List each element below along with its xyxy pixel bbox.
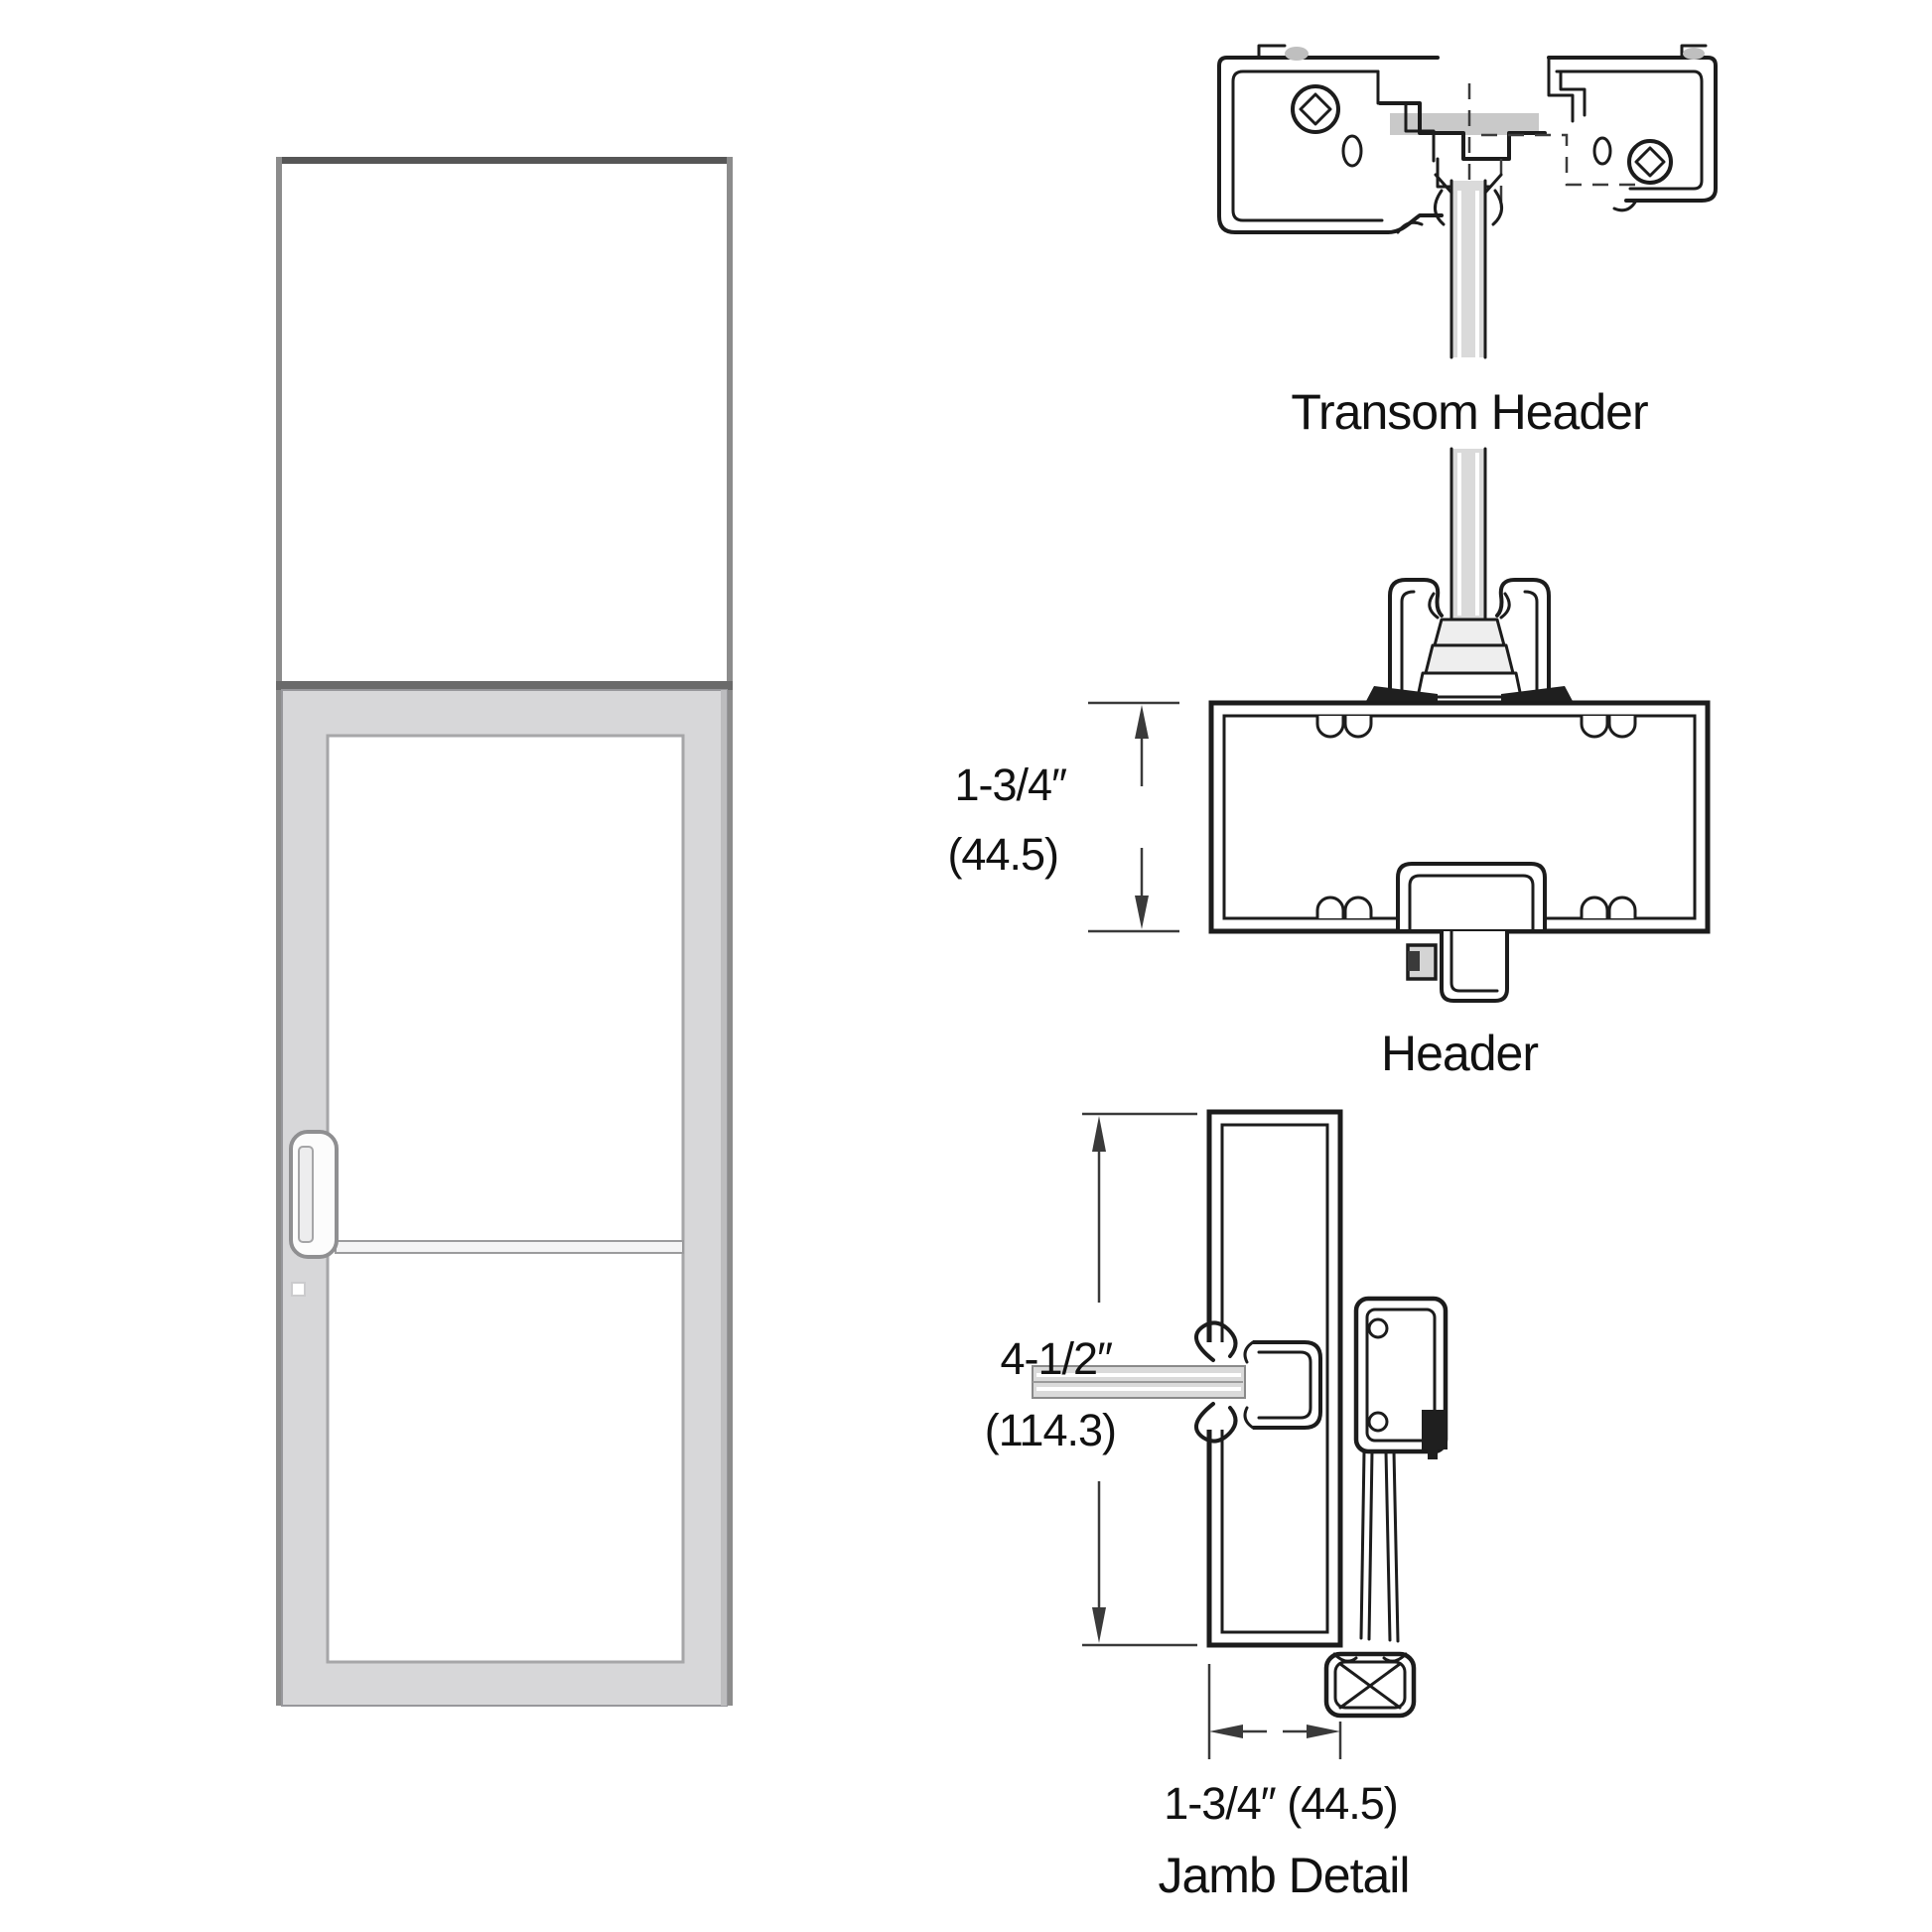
header-label: Header xyxy=(1381,1026,1538,1081)
screw-spline xyxy=(1609,897,1635,918)
dimension-ticks xyxy=(1088,703,1179,931)
door-elevation xyxy=(276,157,733,1706)
stile-gasket-bottom xyxy=(1369,1413,1387,1431)
pull-handle-grip xyxy=(299,1147,313,1242)
arrow-down-icon xyxy=(1135,896,1149,929)
door-right-stile-edge xyxy=(721,690,727,1706)
glass-panel xyxy=(1451,449,1485,620)
door-stop-upper xyxy=(1398,864,1545,929)
frame-head xyxy=(276,157,733,164)
setting-wedge-2 xyxy=(1426,645,1513,673)
screw-spline xyxy=(1317,897,1343,918)
header-detail xyxy=(1088,449,1708,1001)
setting-block xyxy=(1418,673,1521,697)
stile-gasket-top xyxy=(1369,1319,1387,1337)
door-mid-rail xyxy=(336,1241,683,1253)
right-channel-outer xyxy=(1549,58,1716,201)
screw-spline xyxy=(1345,716,1371,737)
right-channel-step xyxy=(1549,58,1585,121)
page: Transom Header xyxy=(0,0,1932,1932)
weatherstrip-block xyxy=(1422,1410,1448,1449)
arrow-up-icon xyxy=(1092,1116,1106,1152)
jamb-depth-imperial: 4-1/2″ xyxy=(1001,1333,1114,1384)
stop-clip-dark xyxy=(1408,951,1420,971)
right-screw-spline xyxy=(1594,138,1610,164)
door-sweep-strips xyxy=(1361,1451,1398,1641)
screw-spline xyxy=(1345,897,1371,918)
diagram-svg: Transom Header xyxy=(0,0,1932,1932)
door-glass xyxy=(328,736,683,1662)
jamb-detail-label: Jamb Detail xyxy=(1159,1848,1410,1903)
glass-panel xyxy=(1451,181,1485,357)
arrow-right-icon xyxy=(1307,1725,1340,1738)
screw-spline xyxy=(1582,716,1607,737)
transom-header-label: Transom Header xyxy=(1291,384,1648,440)
transom-glass xyxy=(282,164,727,681)
transom-bar xyxy=(276,681,733,690)
screw-spline xyxy=(1317,716,1343,737)
setting-wedge-1 xyxy=(1435,620,1504,645)
weatherstrip-stem xyxy=(1428,1448,1438,1459)
screw-spline xyxy=(1609,716,1635,737)
transom-header-detail xyxy=(1219,46,1716,357)
header-height-metric: (44.5) xyxy=(947,829,1058,880)
lock-indicator xyxy=(292,1283,305,1296)
jamb-depth-metric: (114.3) xyxy=(985,1405,1116,1455)
right-seal-blob xyxy=(1683,48,1705,60)
arrow-down-icon xyxy=(1092,1607,1106,1643)
left-channel-outer xyxy=(1219,58,1438,232)
extension-lines xyxy=(1209,1664,1340,1759)
jamb-face-dimension: 1-3/4″ (44.5) xyxy=(1164,1778,1398,1829)
header-height-imperial: 1-3/4″ xyxy=(955,759,1068,810)
left-screw-spline xyxy=(1343,136,1361,166)
arrow-left-icon xyxy=(1209,1725,1243,1738)
arrow-up-icon xyxy=(1135,705,1149,739)
screw-spline xyxy=(1582,897,1607,918)
left-seal-blob xyxy=(1285,47,1309,61)
